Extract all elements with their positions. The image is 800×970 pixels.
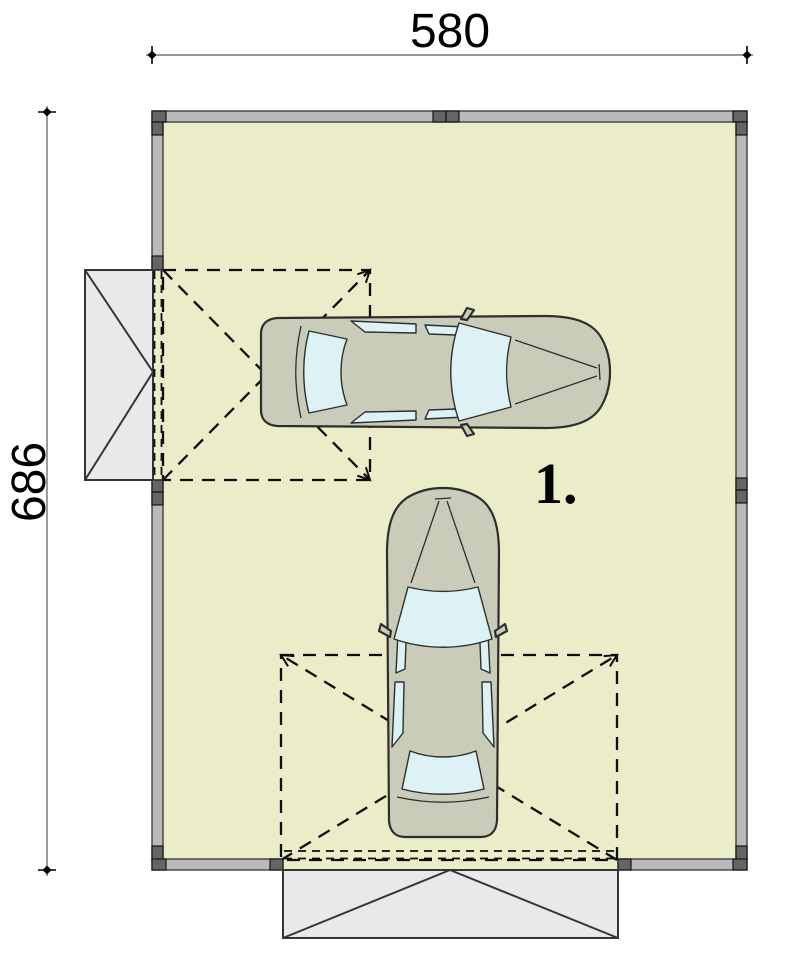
car-vertical [379, 488, 507, 837]
floor-plan-page: 580 686 1. [0, 0, 800, 970]
car-horizontal [261, 308, 610, 436]
wall-bottom-right [618, 859, 747, 870]
top-dimension: 580 [146, 5, 753, 64]
dimension-tick [38, 866, 56, 875]
wall-left-upper [152, 122, 163, 270]
dimension-tick [743, 46, 752, 64]
left-dimension-label: 686 [3, 442, 56, 522]
bottom-garage-door-panel [283, 870, 618, 938]
floor-plan-canvas: 580 686 1. [0, 0, 800, 970]
left-garage-door-panel [85, 270, 153, 480]
dimension-tick [38, 108, 56, 117]
dimension-tick [148, 46, 157, 64]
top-dimension-label: 580 [410, 5, 490, 58]
left-dimension: 686 [3, 106, 56, 876]
bay-number-label: 1. [534, 451, 578, 516]
wall-left-lower [152, 480, 163, 860]
wall-bottom-left [152, 859, 283, 870]
